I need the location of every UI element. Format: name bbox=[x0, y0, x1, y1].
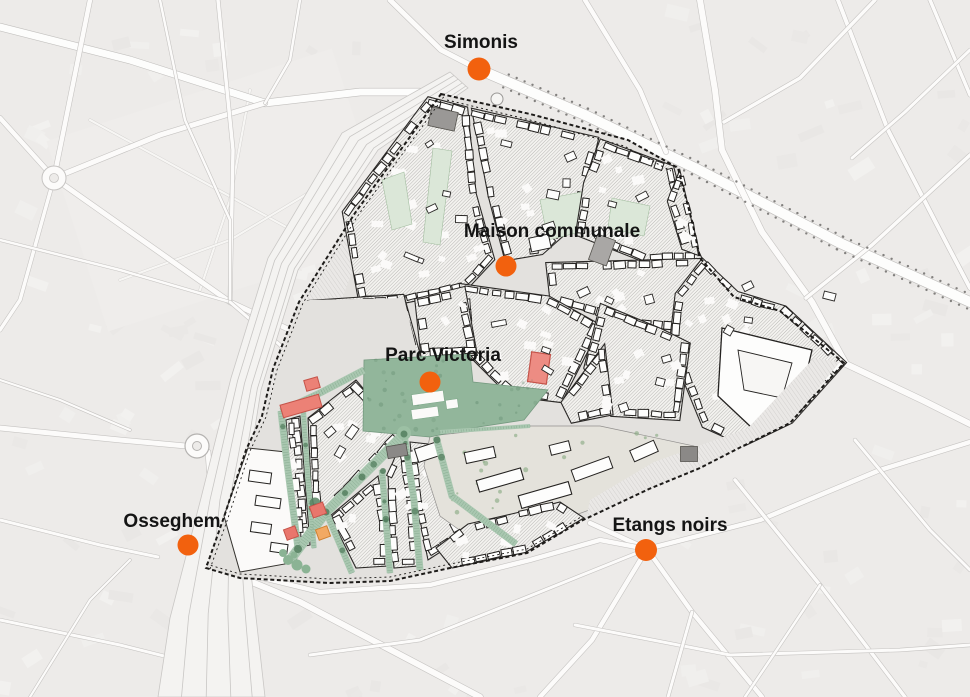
svg-text:Etangs noirs: Etangs noirs bbox=[612, 515, 727, 536]
svg-text:Osseghem: Osseghem bbox=[123, 511, 220, 532]
svg-text:Maison communale: Maison communale bbox=[464, 221, 640, 242]
svg-text:Simonis: Simonis bbox=[444, 32, 518, 53]
svg-text:Parc Victoria: Parc Victoria bbox=[385, 345, 501, 366]
